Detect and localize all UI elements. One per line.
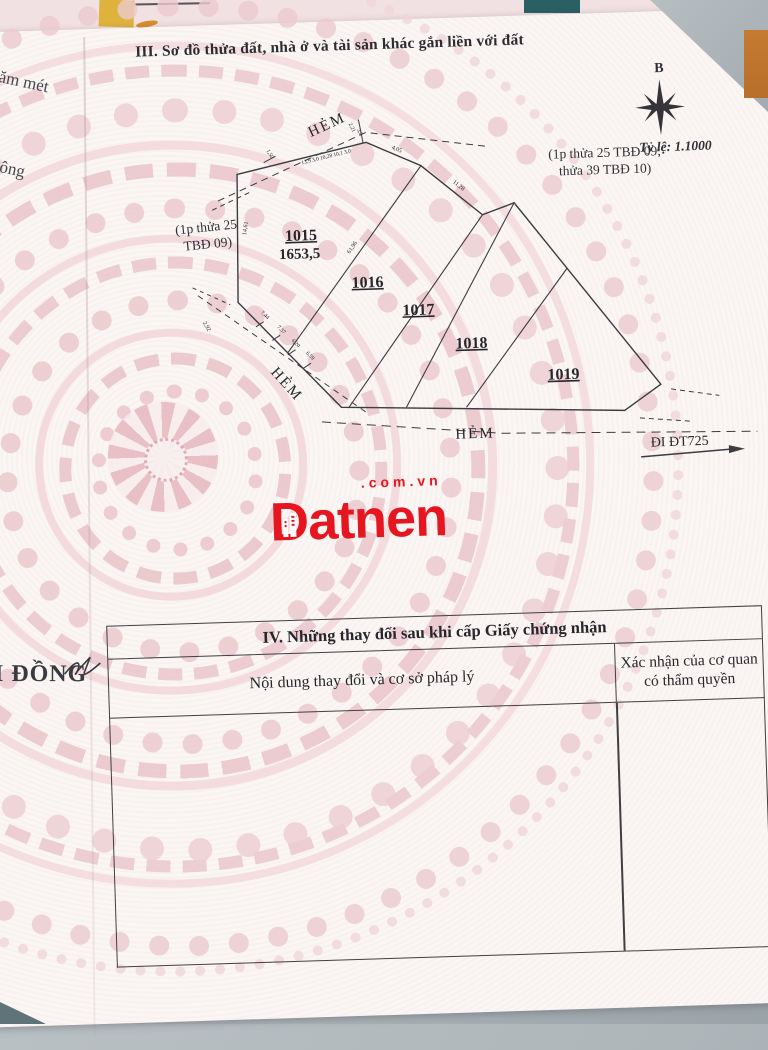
cadastral-diagram: HẺM HẺM HẺM ĐI ĐT725 1015 1653,5 1016 10…	[162, 95, 768, 514]
teal-edge	[524, 0, 580, 13]
dim-bottom-4: 6,59	[304, 351, 315, 362]
section4-col-right-line1: Xác nhận của cơ quan	[620, 649, 758, 673]
road-arrow-head	[729, 445, 745, 453]
section4-table: IV. Những thay đổi sau khi cấp Giấy chứn…	[106, 605, 768, 967]
alley-bottom-label: HẺM	[455, 424, 495, 442]
plot-1017-number: 1017	[402, 301, 435, 319]
plot-1019-number: 1019	[547, 366, 580, 384]
plot-1015-number: 1015	[285, 227, 318, 245]
drum-pattern	[0, 7, 768, 33]
plot-1018-number: 1018	[455, 335, 488, 353]
watermark-logo: .com.vn Datnen	[269, 468, 502, 559]
dim-bottom-1: 7,44	[259, 310, 270, 321]
alley-top-label: HẺM	[305, 109, 348, 141]
road-label: ĐI ĐT725	[650, 434, 708, 451]
dim-alley-width: 2,92	[201, 321, 211, 333]
section4-body	[109, 698, 768, 967]
alley-bottom-line3	[640, 416, 692, 423]
dim-left-edge: 14,61	[242, 221, 250, 235]
dim-divider: 61,96	[346, 241, 359, 255]
plot-1015-area: 1653,5	[279, 246, 321, 263]
parcel-boundary	[233, 133, 661, 422]
building-icon	[280, 511, 303, 542]
dim-slope-b: 11,28	[451, 180, 465, 193]
dim-tick-left: 1,50	[265, 149, 275, 161]
section4-col-right-line2: có thẩm quyền	[644, 669, 736, 691]
alley-top-line	[216, 129, 490, 202]
certificate-page: III. Sơ đồ thửa đất, nhà ở và tài sản kh…	[0, 7, 768, 1028]
section4-body-divider	[616, 703, 625, 951]
alley-bottom-line2	[671, 387, 719, 397]
dim-tick-top-a: 2,21	[347, 122, 357, 134]
section4-col-right-header: Xác nhận của cơ quan có thẩm quyền	[615, 639, 764, 702]
dim-tick-top-b: 3,0	[355, 128, 364, 137]
tick-edge4	[303, 363, 311, 368]
orange-edge-object	[744, 30, 768, 98]
alley-left-line	[198, 291, 367, 418]
plot-1016-number: 1016	[351, 274, 384, 292]
dim-bottom-2: 7,37	[275, 324, 286, 335]
alley-left-label: HẺM	[267, 364, 306, 405]
